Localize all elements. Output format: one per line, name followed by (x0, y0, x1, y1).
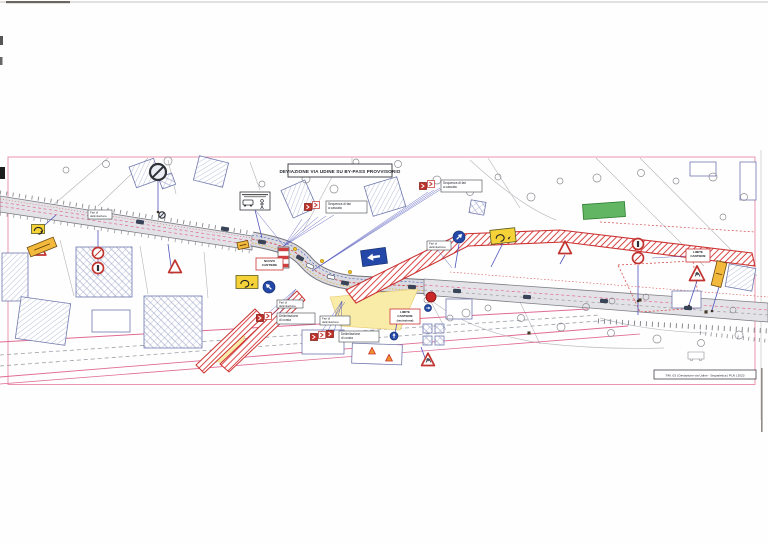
scan-left-mark-2 (0, 36, 3, 45)
building (15, 297, 70, 346)
annotation-text: delimitazione (90, 214, 107, 218)
stripe (279, 248, 289, 251)
annotation-label: Fari didelimitazione (320, 316, 350, 325)
warning-lamp (348, 270, 352, 274)
chevron-panel-icon (420, 183, 427, 190)
prohibition-sign (93, 263, 104, 274)
chevron-panel-icon (305, 204, 312, 211)
building (672, 291, 701, 308)
micro-text-bar (242, 194, 268, 195)
red-disc-sign (426, 292, 436, 302)
building (435, 336, 444, 345)
glyph (637, 241, 639, 247)
circle (244, 205, 246, 207)
scan-left-mark-3 (0, 57, 3, 65)
bus-stop-sign (240, 192, 270, 210)
detour-panel (236, 276, 258, 289)
chevron-panel-icon (257, 315, 264, 322)
scan-top-smudge (6, 1, 70, 3)
mandatory-direction-sign (425, 305, 432, 312)
building (352, 343, 403, 365)
mandatory-direction-sign (390, 332, 398, 340)
vehicle-symbol (453, 289, 461, 293)
vehicle-symbol (136, 220, 144, 225)
chevron-panel-icon (313, 202, 320, 209)
road-furniture-mark (705, 311, 708, 314)
annotation-text: delimitazione (429, 245, 446, 249)
arrow-shaft (372, 256, 380, 257)
detour-panel (32, 225, 45, 235)
no-stopping-sign (159, 212, 165, 218)
traffic-diversion-plan-drawing: Sequenza di faria cascataSequenza di far… (0, 0, 768, 543)
glyph (97, 265, 99, 271)
prohibition-sign (93, 248, 104, 259)
red-note-text: CANTIERE (262, 263, 277, 267)
vehicle-symbol (221, 227, 229, 232)
building (469, 200, 486, 215)
annotation-text: delimitazione (322, 320, 339, 324)
chevron-panel-icon (428, 181, 435, 188)
vehicle-symbol (600, 299, 608, 303)
prohibition-sign (633, 239, 644, 250)
annotation-label: Fari didelimitazione (427, 241, 451, 250)
red-note-box: LIMITECANTIERE(recinzione) (390, 309, 420, 324)
red-note-text: (recinzione) (397, 318, 414, 322)
road-furniture-mark (639, 299, 642, 302)
annotation-text: delimitazione (279, 304, 296, 308)
building (690, 162, 716, 176)
building (740, 162, 756, 200)
vehicle-symbol (408, 285, 416, 289)
scanned-plan-page: Sequenza di faria cascataSequenza di far… (0, 0, 768, 543)
road-furniture-mark (528, 332, 531, 335)
scan-top-edge (0, 2, 768, 3)
building (423, 324, 432, 333)
sign-label-text: di corsia (279, 318, 291, 322)
chevron-panel-icon (319, 332, 326, 339)
red-note-box: NUOVOCANTIERE (256, 258, 283, 270)
sign-label-text: a cascata (443, 185, 457, 189)
micro-text-bar (244, 196, 266, 197)
footer-reference-text: TAV. 03 | Deviazione via Udine - Segnale… (666, 373, 745, 377)
scan-right-edge-dark (761, 368, 763, 432)
red-note-text: CANTIERE (690, 254, 705, 258)
vehicle-symbol (684, 306, 692, 310)
annotation-label: Fari didelimitazione (88, 210, 112, 219)
chevron-panel-icon (311, 334, 318, 341)
vehicle-symbol (258, 240, 266, 245)
building (435, 324, 444, 333)
green-area (583, 202, 626, 220)
detour-panel (490, 228, 516, 245)
title-box: DEVIAZIONE VIA UDINE SU BY-PASS PROVVISO… (279, 164, 400, 177)
left-arrow-panel (361, 247, 388, 266)
sign-label-text: a cascata (328, 206, 342, 210)
prohibition-sign (633, 253, 644, 264)
building (423, 336, 432, 345)
scan-left-mark (0, 167, 5, 179)
building (92, 310, 130, 332)
warning-lamp (293, 247, 297, 251)
chevron-panel-icon (327, 331, 334, 338)
building (725, 264, 756, 291)
no-stopping-sign (150, 164, 166, 180)
chevron-panel-icon (265, 313, 272, 320)
circle (250, 205, 252, 207)
building (144, 296, 202, 348)
pole-base (711, 310, 714, 313)
warning-lamp (320, 259, 324, 263)
red-note-box: LIMITECANTIERE (686, 249, 710, 262)
sign-label-text: di corsia (341, 336, 353, 340)
vehicle-symbol (523, 295, 531, 299)
building (2, 253, 28, 301)
plan-title: DEVIAZIONE VIA UDINE SU BY-PASS PROVVISO… (279, 169, 400, 174)
annotation-label: Fari didelimitazione (277, 300, 303, 308)
